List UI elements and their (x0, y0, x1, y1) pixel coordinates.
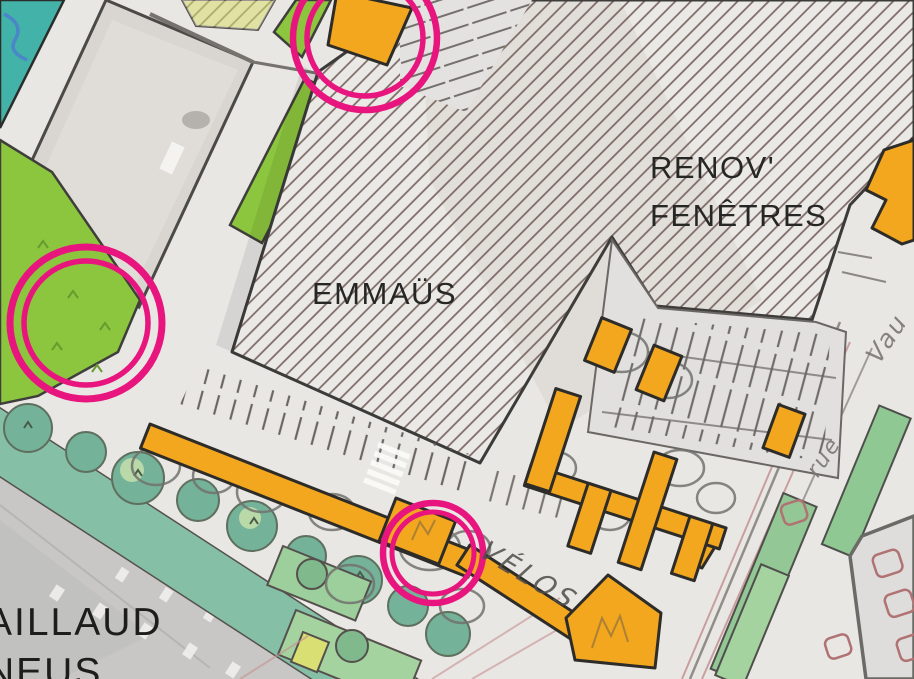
label-neus: NEUS (0, 648, 163, 679)
site-plan-map: EMMAÜS RENOV' FENÊTRES AILLAUD NEUS VÉLO… (0, 0, 914, 679)
label-aillaud: AILLAUD (0, 598, 163, 648)
label-renov-line1: RENOV' (650, 144, 827, 192)
label-corner-buildings: AILLAUD NEUS (0, 598, 163, 679)
label-renov-fenetres: RENOV' FENÊTRES (650, 144, 827, 240)
label-renov-line2: FENÊTRES (650, 192, 827, 240)
label-emmaus: EMMAÜS (312, 276, 457, 312)
map-canvas (0, 0, 914, 679)
vegetation-hatched-top (182, 0, 275, 30)
